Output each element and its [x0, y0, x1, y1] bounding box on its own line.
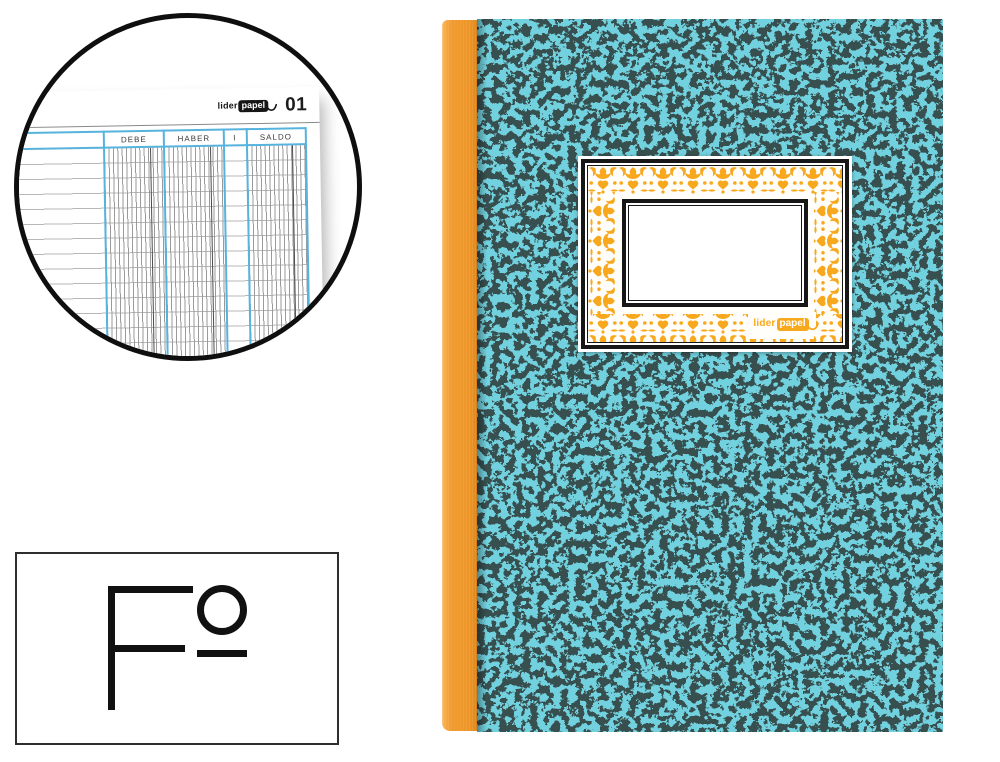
column-header-debe: DEBE: [121, 135, 147, 144]
brand-logo-swoosh: [265, 103, 277, 113]
size-badge: Fº: [15, 552, 339, 745]
column-header-saldo: SALDO: [260, 132, 292, 142]
debe-grid-lines: [104, 148, 168, 361]
column-header-haber: HABER: [177, 134, 210, 144]
notebook-cover: lider papel: [477, 19, 943, 732]
notebook: lider papel: [442, 19, 943, 732]
brand-logo-swoosh: [806, 322, 819, 333]
ledger-table: DEBE HABER I SALDO: [14, 127, 324, 361]
label-brand-logo: lider papel: [756, 312, 816, 336]
saldo-grid-lines: [247, 145, 310, 361]
spine-shadow: [477, 19, 943, 732]
brand-logo-prefix: lider: [753, 319, 775, 329]
brand-logo-prefix: lider: [218, 101, 238, 110]
brand-logo-suffix: papel: [777, 318, 809, 331]
folio-mark: [17, 554, 337, 743]
brand-logo: lider papel: [218, 99, 278, 112]
column-header-i: I: [233, 133, 236, 142]
label-inner-area: lider papel: [587, 165, 843, 343]
cover-label: lider papel: [578, 156, 852, 352]
haber-grid-lines: [164, 147, 228, 361]
brand-logo-suffix: papel: [239, 99, 269, 112]
label-title-box-inner: [628, 205, 802, 301]
page-number: 01: [285, 94, 308, 116]
detail-inset-circle: lider papel 01 DEBE HABER I SALDO: [14, 13, 362, 361]
product-photo: lider papel 01 DEBE HABER I SALDO: [0, 0, 1000, 762]
notebook-spine: [442, 20, 477, 731]
ledger-page-header: lider papel 01: [14, 87, 320, 129]
ledger-page: lider papel 01 DEBE HABER I SALDO: [14, 87, 324, 361]
label-title-box: [622, 199, 808, 307]
label-outer-frame: lider papel: [581, 159, 849, 349]
